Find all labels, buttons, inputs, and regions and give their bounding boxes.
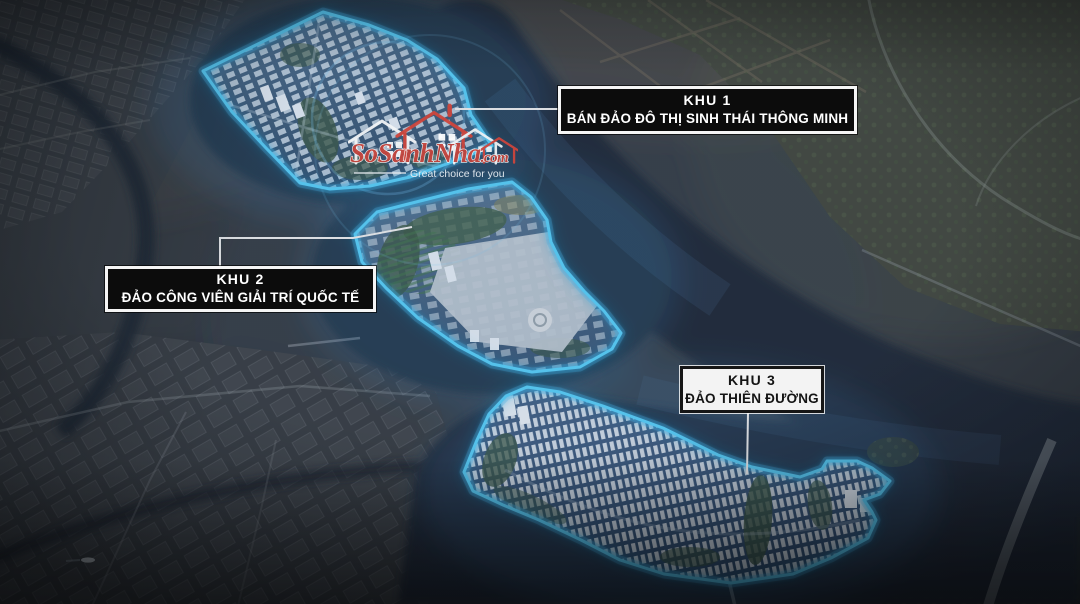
zone-3-name: KHU 3: [728, 371, 776, 390]
watermark-brand: SoSanhNha.com: [350, 138, 508, 168]
zone-2-name: KHU 2: [216, 270, 264, 289]
watermark-tagline: Great choice for you: [410, 168, 505, 180]
zone-label-khu2: KHU 2 ĐẢO CÔNG VIÊN GIẢI TRÍ QUỐC TẾ: [105, 266, 376, 312]
zone-1-description: BÁN ĐẢO ĐÔ THỊ SINH THÁI THÔNG MINH: [567, 110, 849, 129]
zone-1-name: KHU 1: [683, 91, 731, 110]
zone-2-description: ĐẢO CÔNG VIÊN GIẢI TRÍ QUỐC TẾ: [122, 289, 360, 308]
leader-khu3: [747, 413, 748, 474]
zone-label-khu3: KHU 3 ĐẢO THIÊN ĐƯỜNG: [680, 366, 824, 413]
zone-label-khu1: KHU 1 BÁN ĐẢO ĐÔ THỊ SINH THÁI THÔNG MIN…: [558, 86, 857, 134]
watermark: SoSanhNha.com Great choice for you: [348, 96, 518, 191]
zone-3-description: ĐẢO THIÊN ĐƯỜNG: [685, 390, 819, 409]
watermark-brand-suffix: .com: [481, 150, 509, 166]
watermark-graphic: SoSanhNha.com Great choice for you: [348, 96, 518, 191]
watermark-brand-main: SoSanhNha: [350, 138, 481, 168]
aerial-masterplan: KHU 1 BÁN ĐẢO ĐÔ THỊ SINH THÁI THÔNG MIN…: [0, 0, 1080, 604]
